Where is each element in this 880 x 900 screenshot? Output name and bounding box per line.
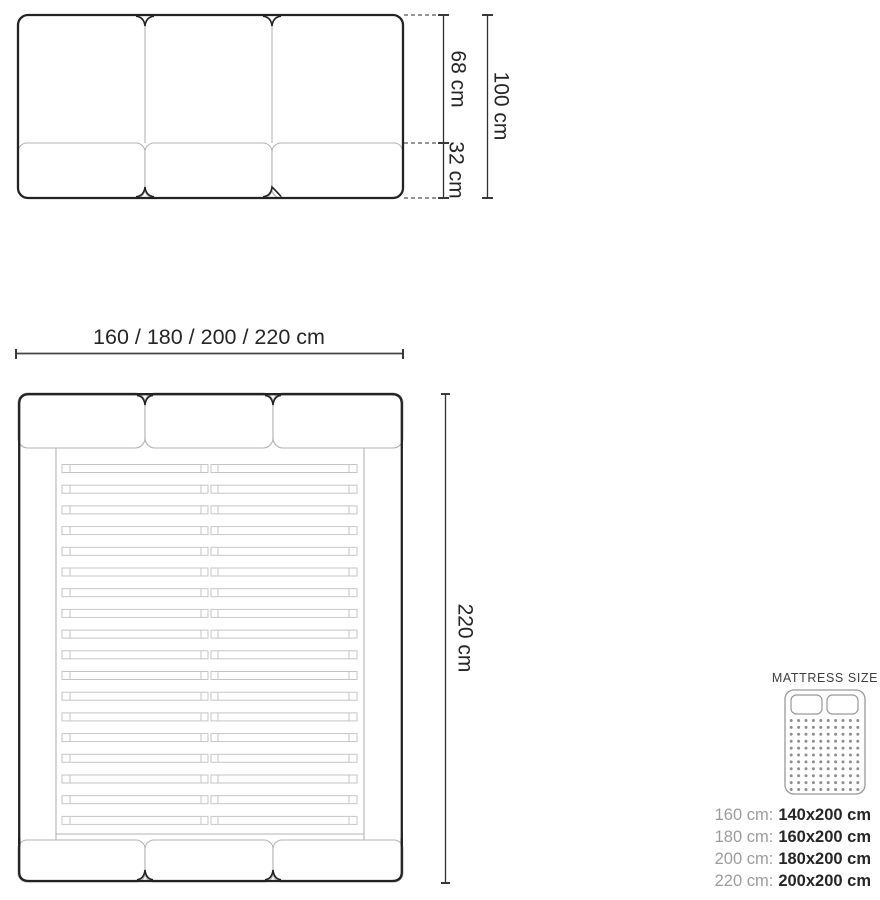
mattress-size-row: 160 cm:140x200 cm — [715, 804, 871, 826]
upper-height-label: 68 cm — [447, 50, 470, 107]
pillow-left — [791, 695, 822, 714]
width-label: 160 / 180 / 200 / 220 cm — [93, 325, 325, 349]
front-lower-cushion — [272, 143, 403, 198]
seam-notch — [136, 16, 154, 26]
slat-grid — [62, 465, 357, 825]
bed-dimensions-diagram: 68 cm 32 cm 100 cm 160 / 180 / 200 / 220… — [0, 0, 880, 900]
mattress-size-row: 200 cm:180x200 cm — [715, 848, 871, 870]
slat-row — [62, 754, 357, 762]
top-footboard-cushion — [145, 840, 273, 882]
seam-notch — [263, 16, 281, 26]
frame-size-label: 220 cm: — [715, 872, 774, 890]
slat-row — [62, 568, 357, 576]
slat-row — [62, 630, 357, 638]
lower-height-label: 32 cm — [445, 141, 468, 198]
slat-row — [62, 609, 357, 617]
mattress-size-table: 160 cm:140x200 cm180 cm:160x200 cm200 cm… — [715, 804, 871, 892]
top-headboard-cushion — [145, 393, 273, 448]
top-headboard-cushion — [273, 393, 403, 448]
mattress-size-value: 160x200 cm — [778, 828, 871, 846]
front-lower-cushion — [18, 143, 145, 198]
slat-row — [62, 465, 357, 473]
slat-row — [62, 734, 357, 742]
slat-row — [62, 816, 357, 824]
slat-row — [62, 527, 357, 535]
mattress-size-title: MATTRESS SIZE — [725, 671, 880, 685]
slat-row — [62, 713, 357, 721]
frame-size-label: 160 cm: — [715, 806, 774, 824]
mattress-size-value: 180x200 cm — [778, 850, 871, 868]
slat-row — [62, 692, 357, 700]
slat-row — [62, 672, 357, 680]
slat-row — [62, 589, 357, 597]
length-label: 220 cm — [454, 604, 477, 673]
slat-row — [62, 796, 357, 804]
mattress-size-value: 140x200 cm — [778, 806, 871, 824]
slat-row — [62, 547, 357, 555]
slat-row — [62, 775, 357, 783]
mattress-size-value: 200x200 cm — [778, 872, 871, 890]
headboard-front-view — [18, 15, 403, 198]
slat-row — [62, 651, 357, 659]
diagram-linework: 68 cm 32 cm 100 cm 160 / 180 / 200 / 220… — [0, 0, 880, 900]
total-height-label: 100 cm — [490, 72, 513, 141]
frame-size-label: 200 cm: — [715, 850, 774, 868]
mattress-size-row: 220 cm:200x200 cm — [715, 870, 871, 892]
top-footboard-cushion — [273, 840, 403, 882]
top-footboard-cushion — [18, 840, 145, 882]
mattress-icon — [784, 689, 866, 795]
frame-size-label: 180 cm: — [715, 828, 774, 846]
front-lower-cushion — [145, 143, 272, 198]
slat-row — [62, 506, 357, 514]
top-headboard-cushion — [18, 393, 145, 448]
bed-top-view: 160 / 180 / 200 / 220 cm — [16, 325, 477, 883]
mattress-size-row: 180 cm:160x200 cm — [715, 826, 871, 848]
slat-row — [62, 485, 357, 493]
pillow-right — [827, 695, 858, 714]
front-view-dimensions: 68 cm 32 cm 100 cm — [404, 15, 513, 199]
